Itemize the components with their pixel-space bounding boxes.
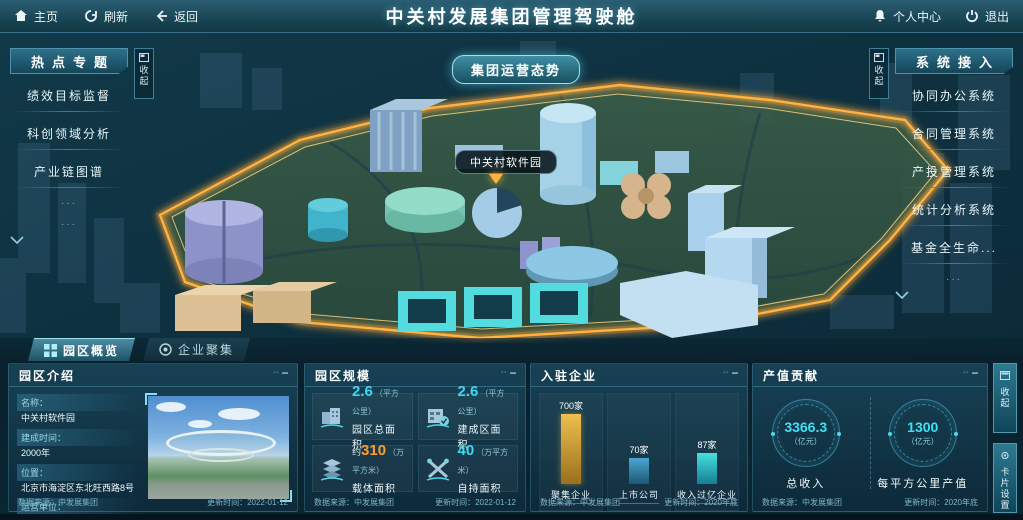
system-item-invest-mgmt[interactable]: 产投管理系统: [895, 163, 1013, 188]
gear-icon: [1000, 451, 1010, 460]
teal-cylinder-building: [308, 198, 348, 242]
system-access-more-indicator: ···: [895, 274, 1013, 285]
bottom-tabs: 园区概览 企业聚集: [28, 338, 250, 361]
refresh-icon: [84, 9, 98, 23]
built-area-icon: [425, 404, 451, 430]
bottom-edge-strip: [0, 514, 1023, 520]
map-marker-label[interactable]: 中关村软件园: [455, 150, 557, 174]
field-label: 位置：: [17, 464, 140, 481]
logout-button[interactable]: 退出: [965, 8, 1009, 25]
field-label: 建成时间：: [17, 429, 140, 446]
park-photo: [148, 396, 289, 499]
gauge-value: 3366.3: [784, 419, 827, 435]
collapse-icon: [874, 53, 884, 62]
cards-collapse-button[interactable]: 收起: [993, 363, 1017, 433]
hot-topic-item-scitech[interactable]: 科创领域分析: [10, 125, 128, 150]
scale-card-carrier-area: 约310（万平方米） 载体面积: [312, 445, 413, 492]
ring-dot: [954, 432, 958, 436]
top-bar-right: 个人中心 退出: [873, 8, 1009, 25]
tab-enterprise-cluster[interactable]: 企业聚集: [143, 338, 250, 361]
tab-park-overview[interactable]: 园区概览: [28, 338, 135, 361]
gauge-unit: （亿元）: [907, 436, 939, 447]
gauge-ring: 3366.3 （亿元）: [772, 399, 840, 467]
update-time: 更新时间：2020年底: [664, 497, 738, 508]
tab-park-overview-label: 园区概览: [63, 342, 119, 359]
hot-topics-panel: 热点专题 收起 绩效目标监督 科创领域分析 产业链图谱 ··· ···: [10, 48, 128, 249]
page-title: 中关村发展集团管理驾驶舱: [386, 3, 638, 29]
self-held-area-icon: [425, 456, 451, 482]
intro-field-location: 位置： 北京市海淀区东北旺西路8号: [17, 464, 140, 494]
data-source: 数据来源：中发展集团: [540, 497, 620, 508]
scene-switch-button[interactable]: 集团运营态势: [452, 55, 580, 84]
system-item-contract-mgmt[interactable]: 合同管理系统: [895, 125, 1013, 150]
park-total-area-icon: [319, 404, 345, 430]
scale-value: 40: [458, 442, 475, 459]
bar-listed: [629, 458, 649, 484]
park-scale-panel: 园区规模 2.6（平方公里） 园区总面积 2.6（平方公里） 建成区面积 约31…: [304, 363, 526, 512]
scale-value: 310: [361, 442, 386, 459]
field-value: 北京市海淀区东北旺西路8号: [17, 481, 140, 494]
gauge-value: 1300: [907, 419, 938, 435]
system-access-scroll-down-icon[interactable]: [895, 291, 909, 299]
scale-card-self-held-area: 40（万平方米） 自持面积: [418, 445, 519, 492]
home-label: 主页: [34, 8, 58, 25]
cloud-shape: [188, 420, 212, 428]
collapse-icon: [139, 53, 149, 62]
hot-topics-collapse-button[interactable]: 收起: [134, 48, 154, 99]
gauge-total-revenue: 3366.3 （亿元） 总收入: [772, 399, 840, 491]
output-gauges: 3366.3 （亿元） 总收入 1300 （亿元） 每平方公里产值: [753, 387, 987, 491]
hot-topics-scroll-down-icon[interactable]: [10, 236, 24, 244]
bell-icon: [873, 9, 887, 23]
grid-icon: [44, 344, 57, 357]
park-intro-footer: 数据来源：中发展集团 更新时间：2022-01-12: [9, 494, 297, 511]
scale-label: 载体面积: [352, 480, 406, 495]
bar-value-label: 70家: [629, 443, 648, 456]
back-label: 返回: [174, 8, 198, 25]
output-value-title: 产值贡献: [753, 364, 987, 387]
system-access-collapse-button[interactable]: 收起: [869, 48, 889, 99]
scale-card-built-area: 2.6（平方公里） 建成区面积: [418, 393, 519, 440]
enterprises-bar-chart: 700家 聚集企业 70家 上市公司 87家 收入过亿企业: [531, 387, 747, 511]
enterprises-panel: 入驻企业 700家 聚集企业 70家 上市公司 87家 收入过亿企业: [530, 363, 748, 512]
field-value: 2000年: [17, 446, 140, 459]
map-marker-pin-icon: [489, 174, 503, 184]
hot-topic-item-industry-chain[interactable]: 产业链图谱: [10, 163, 128, 188]
enterprises-title: 入驻企业: [531, 364, 747, 387]
hot-topic-item-performance[interactable]: 绩效目标监督: [10, 87, 128, 112]
dashboard-root: 主页 刷新 返回 中关村发展集团管理驾驶舱 个人中心 退出 集团运营态势 中关: [0, 0, 1023, 520]
back-button[interactable]: 返回: [154, 8, 198, 25]
bottom-section: 园区概览 企业聚集 园区介绍 名称： 中关村软件园 建成时间： 2000年: [0, 338, 1023, 520]
bar-cluster: [561, 414, 581, 484]
ring-dot: [888, 432, 892, 436]
intro-field-built-time: 建成时间： 2000年: [17, 429, 140, 459]
system-access-header: 系统接入: [895, 48, 1013, 74]
ring-dot: [837, 432, 841, 436]
carrier-area-icon: [319, 456, 345, 482]
ring-dot: [771, 432, 775, 436]
small-right-box: [655, 151, 689, 173]
update-time: 更新时间：2022-01-12: [207, 497, 288, 508]
bar-value-label: 87家: [697, 438, 716, 451]
back-arrow-icon: [154, 9, 168, 23]
collapse-label: 收起: [138, 65, 151, 87]
logout-label: 退出: [985, 8, 1009, 25]
output-value-panel: 产值贡献 3366.3 （亿元） 总收入 1300: [752, 363, 988, 512]
card-settings-label: 卡片设置: [999, 467, 1012, 511]
update-time: 更新时间：2020年底: [904, 497, 978, 508]
hot-topics-more-indicator-2: ···: [10, 219, 128, 230]
gauge-ring: 1300 （亿元）: [889, 399, 957, 467]
top-bar: 主页 刷新 返回 中关村发展集团管理驾驶舱 个人中心 退出: [0, 0, 1023, 33]
system-item-fund-lifecycle[interactable]: 基金全生命...: [895, 239, 1013, 264]
gauge-label: 总收入: [772, 475, 840, 491]
gauge-unit: （亿元）: [790, 436, 822, 447]
system-item-collab-office[interactable]: 协同办公系统: [895, 87, 1013, 112]
intro-field-name: 名称： 中关村软件园: [17, 394, 140, 424]
park-intro-title: 园区介绍: [9, 364, 297, 387]
scale-prefix: 约: [352, 447, 361, 457]
personal-center-button[interactable]: 个人中心: [873, 8, 941, 25]
update-time: 更新时间：2022-01-12: [435, 497, 516, 508]
hot-topics-more-indicator: ···: [10, 198, 128, 209]
scale-card-total-area: 2.6（平方公里） 园区总面积: [312, 393, 413, 440]
field-value: 中关村软件园: [17, 411, 140, 424]
mint-round-building: [385, 187, 465, 233]
cards-collapse-label: 收起: [999, 387, 1012, 409]
bar-over100m: [697, 453, 717, 484]
landmark-ring-inner-shape: [188, 448, 254, 462]
gauge-label: 每平方公里产值: [877, 475, 968, 491]
enterprises-footer: 数据来源：中发展集团 更新时间：2020年底: [531, 494, 747, 511]
field-label: 名称：: [17, 394, 140, 411]
gauge-per-sqkm-output: 1300 （亿元） 每平方公里产值: [877, 399, 968, 491]
refresh-button[interactable]: 刷新: [84, 8, 128, 25]
system-access-panel: 系统接入 收起 协同办公系统 合同管理系统 产投管理系统 统计分析系统 基金全生…: [895, 48, 1013, 304]
cloud-shape: [218, 408, 260, 420]
home-button[interactable]: 主页: [14, 8, 58, 25]
output-footer: 数据来源：中发展集团 更新时间：2020年底: [753, 494, 987, 511]
bar-value-label: 700家: [559, 399, 583, 412]
sliced-cylinder-building: [472, 188, 522, 238]
hot-topics-header: 热点专题: [10, 48, 128, 74]
data-source: 数据来源：中发展集团: [762, 497, 842, 508]
data-source: 数据来源：中发展集团: [18, 497, 98, 508]
data-source: 数据来源：中发展集团: [314, 497, 394, 508]
refresh-label: 刷新: [104, 8, 128, 25]
park-scale-grid: 2.6（平方公里） 园区总面积 2.6（平方公里） 建成区面积 约310（万平方…: [305, 387, 525, 498]
scale-label: 自持面积: [458, 480, 512, 495]
top-nav: 主页 刷新 返回: [14, 8, 198, 25]
collapse-label: 收起: [873, 65, 886, 87]
home-icon: [14, 9, 28, 23]
park-scale-title: 园区规模: [305, 364, 525, 387]
card-settings-button[interactable]: 卡片设置: [993, 443, 1017, 513]
park-scale-footer: 数据来源：中发展集团 更新时间：2022-01-12: [305, 494, 525, 511]
collapse-panels-icon: [1000, 371, 1010, 380]
park-intro-panel: 园区介绍 名称： 中关村软件园 建成时间： 2000年 位置： 北京市海淀区东北…: [8, 363, 298, 512]
tab-enterprise-cluster-label: 企业聚集: [178, 341, 234, 358]
purple-twin-cylinder: [185, 200, 263, 284]
system-item-stat-analysis[interactable]: 统计分析系统: [895, 201, 1013, 226]
pad-ellipse-building: [526, 246, 618, 288]
cloud-shape: [156, 402, 186, 412]
power-icon: [965, 9, 979, 23]
personal-center-label: 个人中心: [893, 8, 941, 25]
enterprise-icon: [159, 343, 172, 356]
